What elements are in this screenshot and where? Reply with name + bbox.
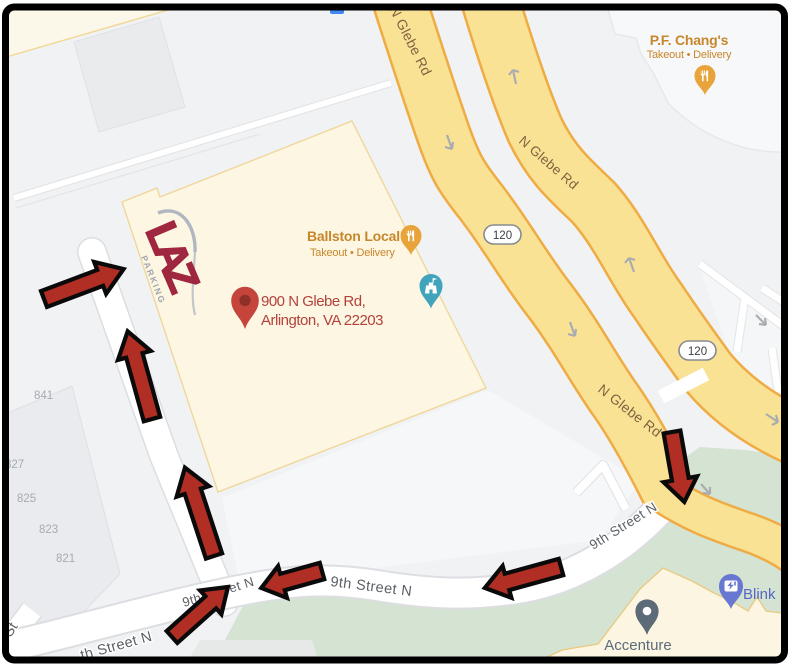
svg-text:Accenture: Accenture (604, 637, 672, 654)
svg-text:823: 823 (39, 524, 58, 536)
svg-text:120: 120 (493, 230, 512, 242)
svg-text:P.F. Chang's: P.F. Chang's (650, 32, 729, 48)
svg-text:825: 825 (17, 493, 36, 505)
svg-text:120: 120 (688, 346, 707, 358)
svg-text:900 N Glebe Rd,: 900 N Glebe Rd, (261, 293, 365, 310)
svg-text:Blink: Blink (743, 586, 776, 603)
svg-text:Takeout • Delivery: Takeout • Delivery (310, 247, 395, 259)
svg-text:Arlington, VA 22203: Arlington, VA 22203 (261, 312, 383, 329)
svg-text:Ballston Local: Ballston Local (307, 228, 400, 244)
svg-text:Takeout • Delivery: Takeout • Delivery (647, 49, 732, 61)
svg-text:821: 821 (56, 553, 75, 565)
svg-text:841: 841 (34, 390, 53, 402)
